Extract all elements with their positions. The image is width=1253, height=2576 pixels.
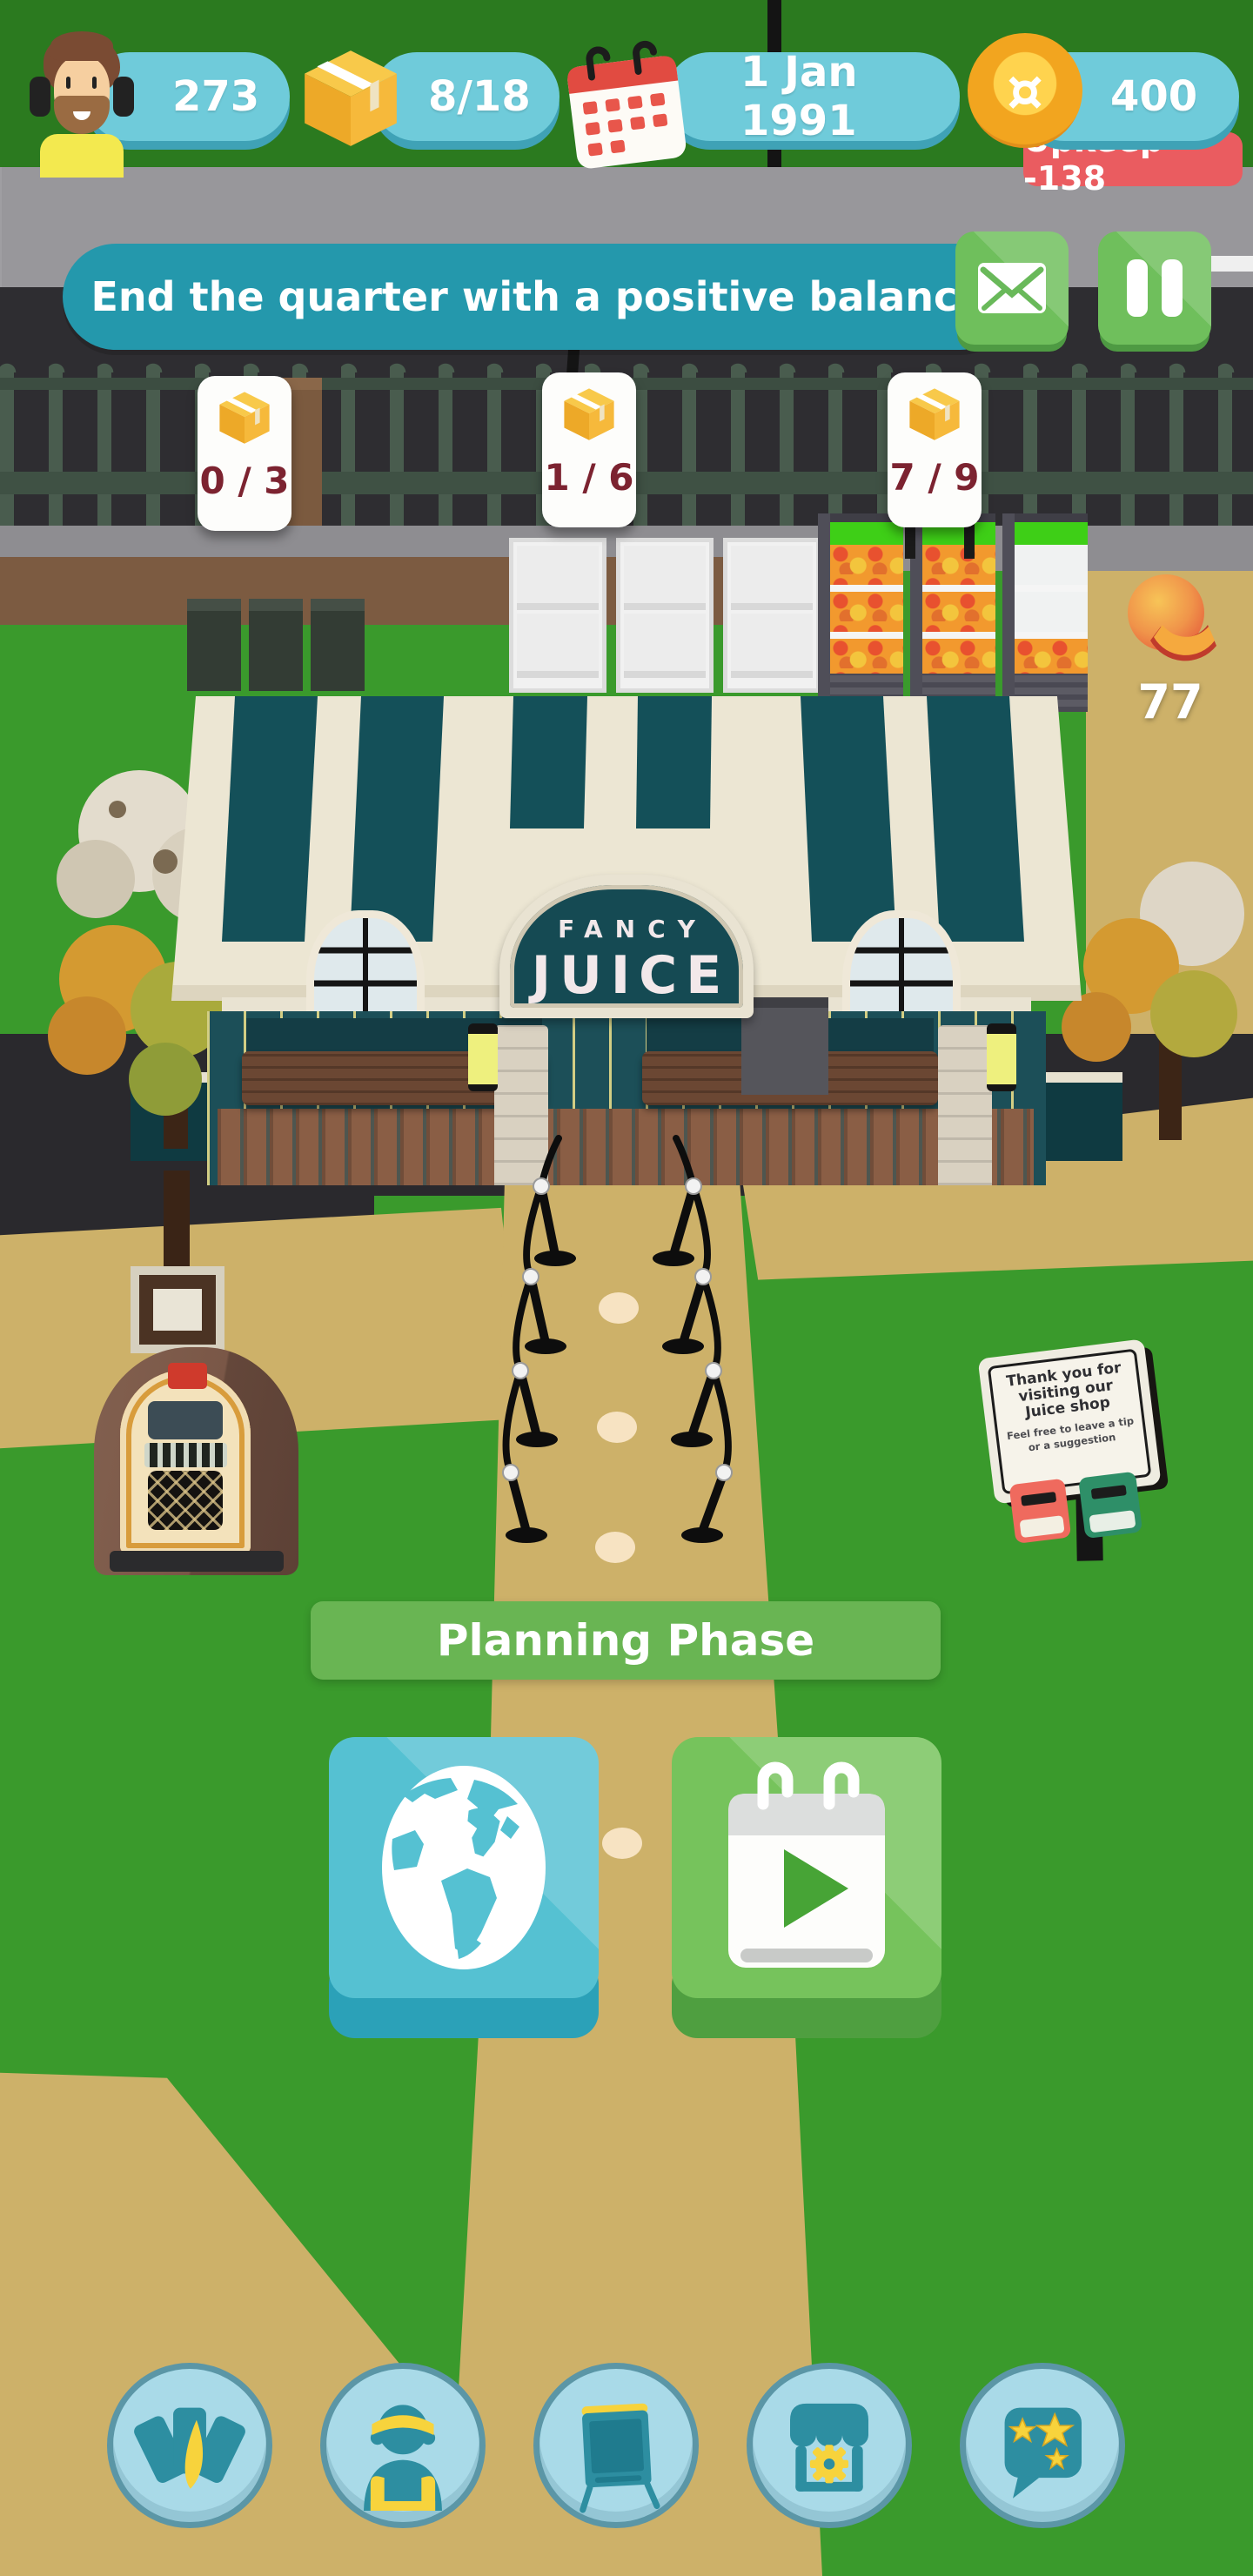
box-icon (560, 385, 618, 442)
rack-peaches[interactable] (616, 538, 714, 693)
stone-pillar (938, 1025, 992, 1185)
staff-button[interactable] (320, 2363, 486, 2528)
fridge-full[interactable] (818, 513, 903, 712)
date-pill[interactable]: 1 Jan 1991 (666, 52, 960, 141)
box-icon (906, 385, 963, 442)
lamp-icon (468, 1023, 498, 1091)
shop-gear-icon (764, 2376, 895, 2515)
currency-symbol: ¤ (1007, 57, 1043, 124)
world-map-button[interactable] (329, 1737, 599, 1998)
shop-upgrades-button[interactable] (747, 2363, 912, 2528)
envelope-icon (978, 263, 1046, 313)
tip-sign-title: Thank you for visiting our Juice shop (996, 1358, 1136, 1424)
jukebox-top-light (168, 1363, 207, 1389)
calendar-icon (558, 31, 693, 176)
stock-badge-value: 1 / 6 (544, 456, 633, 499)
background-rail (1209, 256, 1253, 272)
fruit-count: 77 (1092, 674, 1249, 729)
review-stars-icon (977, 2376, 1108, 2515)
display-racks[interactable] (509, 538, 821, 693)
phase-banner: Planning Phase (311, 1601, 941, 1680)
suggestion-box-green[interactable] (1078, 1472, 1142, 1540)
globe-icon (377, 1761, 551, 1975)
juice-cards-icon (124, 2376, 255, 2515)
street-tree-planter (131, 1266, 224, 1353)
pause-button[interactable] (1098, 231, 1211, 345)
next-phase-button[interactable] (672, 1737, 941, 1998)
fridge-full[interactable] (910, 513, 995, 712)
date-value: 1 Jan 1991 (740, 48, 960, 145)
queue-dot (595, 1532, 635, 1563)
game-scene: 77 (0, 0, 1253, 2576)
headphones-icon (30, 77, 50, 117)
jukebox[interactable] (94, 1347, 298, 1575)
marketing-button[interactable] (533, 2363, 699, 2528)
queue-dot (599, 1292, 639, 1324)
player-avatar[interactable] (24, 31, 139, 178)
fruit-fridges[interactable] (818, 513, 1096, 712)
coins-value: 400 (1110, 72, 1197, 121)
calendar-play-icon (720, 1759, 894, 1976)
box-icon (298, 44, 404, 150)
queue-dot (602, 1828, 642, 1859)
worker-icon (338, 2376, 468, 2515)
shop-sign-line1: FANCY (546, 915, 707, 943)
recipes-button[interactable] (107, 2363, 272, 2528)
quest-banner[interactable]: End the quarter with a positive balance (63, 244, 1013, 350)
avatar-stat-value: 273 (172, 72, 259, 121)
fridge-partial[interactable] (1002, 513, 1088, 712)
rack-empty[interactable] (509, 538, 606, 693)
dormer-window (306, 910, 425, 1023)
quest-objective: End the quarter with a positive balance (90, 273, 984, 320)
dormer-window (842, 910, 961, 1023)
stock-badge-value: 7 / 9 (889, 456, 979, 499)
shop-sign-line2: JUICE (523, 945, 730, 1006)
stock-badge[interactable]: 0 / 3 (198, 376, 291, 531)
lamp-icon (987, 1023, 1016, 1091)
tip-box-red[interactable] (1008, 1479, 1071, 1544)
stock-badge[interactable]: 1 / 6 (542, 372, 636, 527)
sign-board-icon (551, 2376, 681, 2515)
order-kiosk (741, 997, 828, 1095)
empty-bins[interactable] (187, 599, 365, 691)
rack-empty[interactable] (723, 538, 821, 693)
queue-dot (597, 1412, 637, 1443)
coin-icon: ¤ (968, 33, 1082, 148)
box-icon (216, 388, 273, 446)
peach-icon (1124, 573, 1225, 670)
queue-stanchions (461, 1131, 792, 1549)
boxes-value: 8/18 (428, 72, 531, 121)
reviews-button[interactable] (960, 2363, 1125, 2528)
stock-badge-value: 0 / 3 (199, 460, 289, 502)
phase-label: Planning Phase (437, 1615, 814, 1666)
pause-icon (1127, 259, 1183, 317)
street-tree-trunk (164, 1171, 190, 1279)
tip-sign[interactable]: Thank you for visiting our Juice shop Fe… (978, 1337, 1186, 1575)
stock-badge[interactable]: 7 / 9 (888, 372, 982, 527)
mail-button[interactable] (955, 231, 1069, 345)
